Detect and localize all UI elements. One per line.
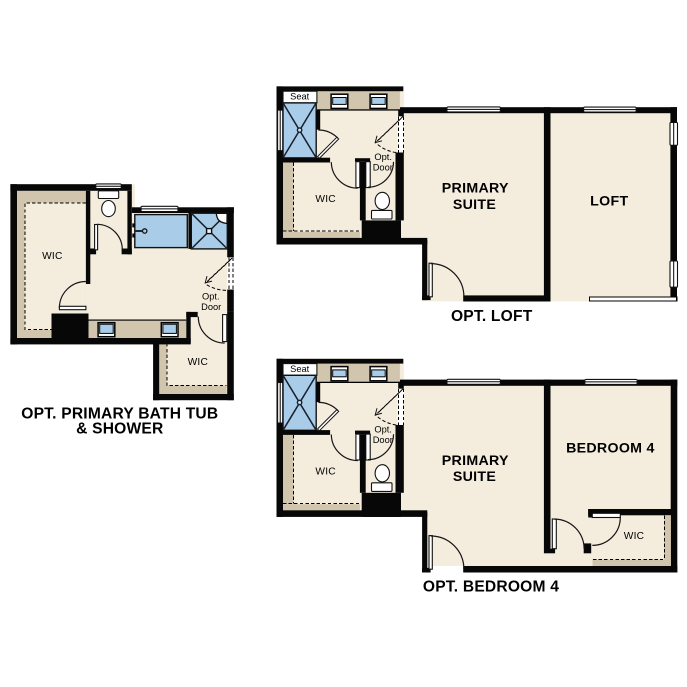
svg-text:PRIMARY: PRIMARY (442, 453, 509, 469)
svg-text:Door: Door (373, 435, 393, 445)
svg-text:Opt.: Opt. (374, 152, 392, 162)
svg-text:SUITE: SUITE (453, 469, 496, 485)
svg-text:& SHOWER: & SHOWER (76, 421, 163, 438)
svg-text:PRIMARY: PRIMARY (442, 180, 509, 196)
svg-text:WIC: WIC (42, 251, 62, 262)
svg-text:BEDROOM 4: BEDROOM 4 (566, 440, 655, 456)
svg-text:Door: Door (373, 163, 393, 173)
svg-text:WIC: WIC (188, 357, 208, 368)
svg-text:OPT. BEDROOM 4: OPT. BEDROOM 4 (423, 578, 559, 595)
svg-text:Seat: Seat (290, 92, 310, 102)
svg-text:OPT. LOFT: OPT. LOFT (451, 308, 533, 325)
svg-text:Door: Door (201, 302, 221, 312)
svg-text:Seat: Seat (290, 364, 310, 374)
svg-text:WIC: WIC (315, 466, 335, 477)
svg-text:Opt.: Opt. (374, 425, 392, 435)
svg-text:WIC: WIC (624, 531, 644, 542)
svg-text:WIC: WIC (315, 194, 335, 205)
svg-text:LOFT: LOFT (590, 193, 628, 209)
svg-text:SUITE: SUITE (453, 197, 496, 213)
svg-text:Opt.: Opt. (202, 292, 220, 302)
